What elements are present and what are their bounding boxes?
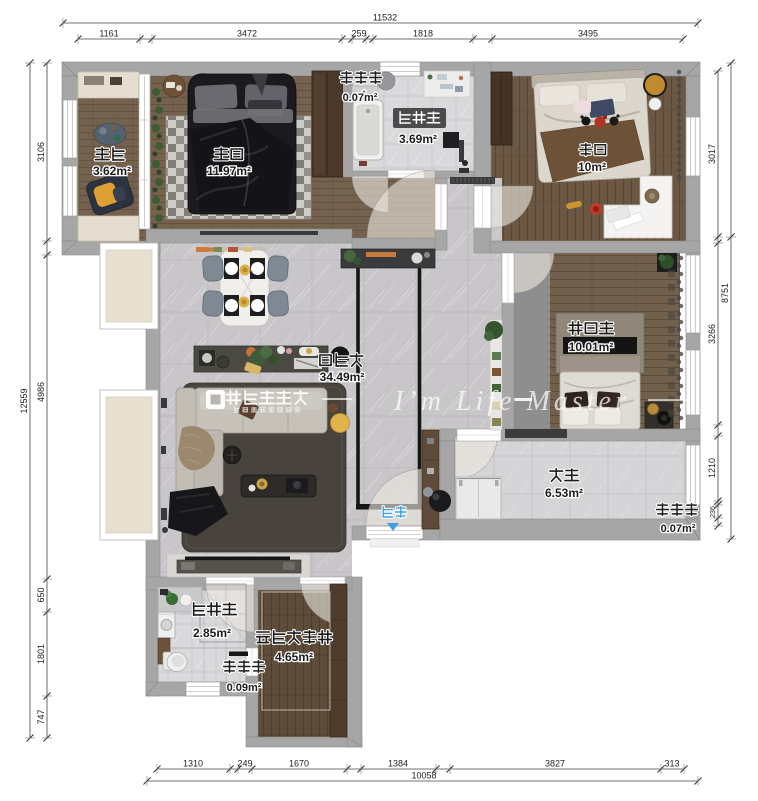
svg-text:1670: 1670 bbox=[289, 759, 309, 769]
svg-text:1801: 1801 bbox=[36, 644, 46, 664]
svg-text:249: 249 bbox=[237, 759, 252, 769]
svg-text:1210: 1210 bbox=[707, 458, 717, 478]
svg-text:4.65m²: 4.65m² bbox=[275, 650, 313, 664]
svg-text:3827: 3827 bbox=[545, 759, 565, 769]
svg-text:3.62m²: 3.62m² bbox=[93, 164, 131, 178]
svg-text:3472: 3472 bbox=[237, 29, 257, 39]
svg-text:3266: 3266 bbox=[707, 324, 717, 344]
svg-text:1384: 1384 bbox=[388, 759, 408, 769]
svg-text:313: 313 bbox=[664, 759, 679, 769]
svg-text:10m²: 10m² bbox=[578, 160, 606, 174]
svg-text:3106: 3106 bbox=[36, 142, 46, 162]
svg-text:11532: 11532 bbox=[373, 13, 397, 23]
svg-text:11.97m²: 11.97m² bbox=[207, 164, 251, 178]
svg-text:3495: 3495 bbox=[578, 29, 598, 39]
svg-text:0.07m²: 0.07m² bbox=[343, 92, 378, 104]
svg-text:747: 747 bbox=[36, 709, 46, 724]
svg-text:34.49m²: 34.49m² bbox=[320, 370, 365, 384]
svg-text:10058: 10058 bbox=[411, 771, 436, 781]
svg-text:6.53m²: 6.53m² bbox=[545, 486, 583, 500]
svg-text:0.07m²: 0.07m² bbox=[661, 523, 696, 535]
svg-text:1310: 1310 bbox=[183, 759, 203, 769]
svg-text:8751: 8751 bbox=[720, 283, 730, 303]
svg-text:259: 259 bbox=[351, 29, 366, 39]
svg-text:2.85m²: 2.85m² bbox=[193, 626, 231, 640]
svg-text:1818: 1818 bbox=[413, 29, 433, 39]
svg-text:236: 236 bbox=[710, 506, 717, 518]
svg-text:3017: 3017 bbox=[707, 144, 717, 164]
svg-text:1161: 1161 bbox=[99, 29, 118, 39]
svg-text:4986: 4986 bbox=[36, 382, 46, 402]
svg-text:12559: 12559 bbox=[19, 388, 29, 413]
svg-text:10.01m²: 10.01m² bbox=[569, 340, 614, 354]
svg-text:3.69m²: 3.69m² bbox=[399, 132, 437, 146]
svg-text:0.09m²: 0.09m² bbox=[227, 682, 262, 694]
svg-text:650: 650 bbox=[36, 587, 46, 602]
svg-text:I’m Life Master: I’m Life Master bbox=[393, 386, 630, 417]
